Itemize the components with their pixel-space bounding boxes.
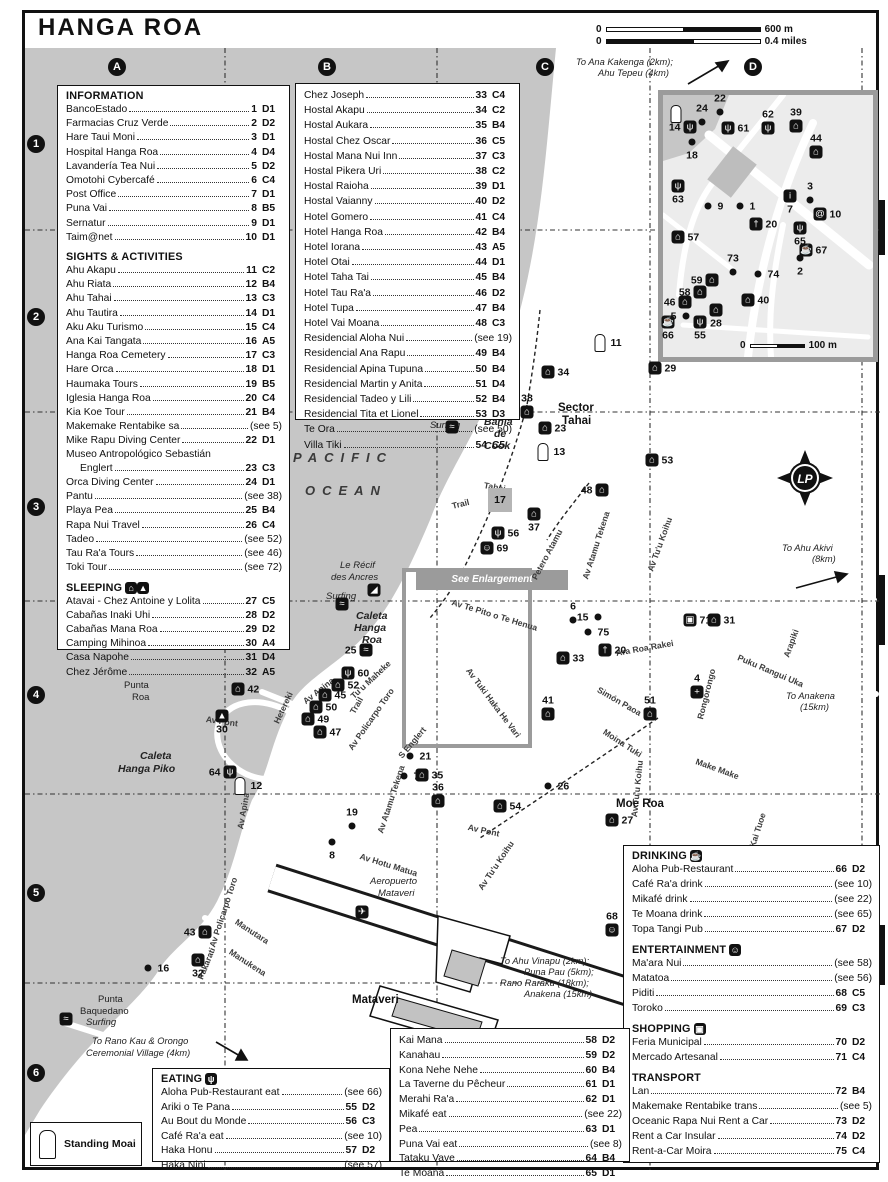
index-panel-right-bottom: DRINKING☕ Aloha Pub-Restaurant66D2Café R…	[623, 845, 880, 1163]
index-row: Cabañas Mana Roa29D2	[66, 622, 282, 636]
index-row: Kai Mana58D2	[399, 1033, 622, 1048]
index-row: Kia Koe Tour21B4	[66, 405, 282, 419]
index-row: Ma'ara Nui(see 58)	[632, 956, 872, 971]
index-row: Playa Pea25B4	[66, 503, 282, 517]
index-row: Hotel Taha Tai45B4	[304, 270, 512, 285]
map-label: Ceremonial Village (4km)	[86, 1048, 190, 1058]
index-row: Hotel Gomero41C4	[304, 210, 512, 225]
index-row: Te Moana65D1	[399, 1166, 622, 1181]
map-label: (15km)	[800, 702, 829, 712]
map-page: LP HANGA ROA 0 600 m 0 0.4 miles	[0, 0, 888, 1182]
map-label: To Ahu Vinapu (2km);	[500, 956, 589, 966]
map-label: Aeropuerto	[370, 876, 417, 887]
shopping-list: Feria Municipal70D2Mercado Artesanal71C4	[632, 1035, 872, 1065]
section-information: INFORMATION BancoEstado1D1Farmacias Cruz…	[66, 90, 282, 244]
index-row: Rent-a-Car Moira75C4	[632, 1144, 872, 1159]
index-row: Toki Tour(see 72)	[66, 560, 282, 574]
index-row: Sernatur9D1	[66, 216, 282, 230]
shp-icon: ▣	[694, 1023, 706, 1035]
section-title: TRANSPORT	[632, 1072, 872, 1084]
grid-column-badge-C: C	[536, 58, 554, 76]
entertainment-list: Ma'ara Nui(see 58)Matatoa(see 56)Piditi6…	[632, 956, 872, 1016]
map-label: Surfing	[326, 591, 356, 602]
index-row: Englert23C3	[66, 461, 282, 475]
index-row: Hostal Aukara35B4	[304, 118, 512, 133]
soccer-field-shape	[707, 146, 756, 198]
index-row: Residencial Ana Rapu49B4	[304, 346, 512, 361]
index-panel-eating-cont: Kai Mana58D2Kanahau59D2Kona Nehe Nehe60B…	[390, 1028, 630, 1162]
index-row: Matatoa(see 56)	[632, 971, 872, 986]
index-row: Hospital Hanga Roa4D4	[66, 145, 282, 159]
information-list: BancoEstado1D1Farmacias Cruz Verde2D2Har…	[66, 102, 282, 244]
map-label: Caleta	[140, 750, 172, 762]
index-row: Oceanic Rapa Nui Rent a Car73D2	[632, 1114, 872, 1129]
index-row: Hotel Hanga Roa42B4	[304, 225, 512, 240]
index-row: Aloha Pub-Restaurant66D2	[632, 862, 872, 877]
index-row: Haka Nini(see 57)	[161, 1158, 382, 1173]
map-label: Caleta	[356, 610, 388, 622]
index-row: Ahu Riata12B4	[66, 277, 282, 291]
map-label: To Ahu Akivi	[782, 543, 833, 553]
index-row: Hotel Vai Moana48C3	[304, 316, 512, 331]
index-row: Ahu Tahai13C3	[66, 291, 282, 305]
index-row: Ahu Akapu11C2	[66, 263, 282, 277]
index-row: Residencial Tadeo y Lili52B4	[304, 392, 512, 407]
map-label: Mataveri	[378, 888, 414, 899]
map-label: Puna Pau (5km);	[524, 967, 594, 977]
section-title: INFORMATION	[66, 90, 282, 102]
map-label: Roa	[132, 692, 149, 703]
index-row: Te Moana drink(see 65)	[632, 907, 872, 922]
index-row: Farmacias Cruz Verde2D2	[66, 116, 282, 130]
index-row: Hostal Raioha39D1	[304, 179, 512, 194]
enlargement-inset-map	[658, 90, 878, 362]
index-row: Rent a Car Insular74D2	[632, 1129, 872, 1144]
index-row: Hostal Pikera Uri38C2	[304, 164, 512, 179]
index-panel-eating: EATINGψ Aloha Pub-Restaurant eat(see 66)…	[152, 1068, 390, 1162]
index-row: Orca Diving Center24D1	[66, 475, 282, 489]
map-label: Baquedano	[80, 1006, 129, 1017]
index-row: Hotel Otai44D1	[304, 255, 512, 270]
index-row: Au Bout du Monde56C3	[161, 1114, 382, 1129]
map-label: Hanga	[354, 622, 386, 634]
index-row: Chez Joseph33C4	[304, 88, 512, 103]
map-label: Le Récif	[340, 560, 375, 571]
index-row: Villa Tiki54C5	[304, 438, 512, 453]
map-label: Tahai	[562, 415, 591, 427]
section-eating: EATINGψ Aloha Pub-Restaurant eat(see 66)…	[161, 1073, 382, 1173]
index-row: Hotel Tupa47B4	[304, 301, 512, 316]
index-row: Ana Kai Tangata16A5	[66, 334, 282, 348]
index-row: Mike Rapu Diving Center22D1	[66, 433, 282, 447]
index-row: Iglesia Hanga Roa20C4	[66, 391, 282, 405]
index-row: Mercado Artesanal71C4	[632, 1050, 872, 1065]
index-row: Residencial Apina Tupuna50B4	[304, 362, 512, 377]
index-row: Residencial Martin y Anita51D4	[304, 377, 512, 392]
page-edge-mark	[879, 575, 885, 645]
index-row: Hanga Roa Cemetery17C3	[66, 348, 282, 362]
index-row: Mikafé drink(see 22)	[632, 892, 872, 907]
grid-column-badge-D: D	[744, 58, 762, 76]
index-row: Ariki o Te Pana55D2	[161, 1100, 382, 1115]
index-row: Feria Municipal70D2	[632, 1035, 872, 1050]
index-row: Residencial Tita et Lionel53D3	[304, 407, 512, 422]
map-label: Sector	[558, 402, 594, 414]
map-label: To Rano Kau & Orongo	[92, 1036, 188, 1046]
map-label: To Anakena	[786, 691, 835, 701]
map-label: OCEAN	[305, 483, 387, 498]
legend-standing-moai: Standing Moai	[30, 1122, 142, 1166]
index-row: Aku Aku Turismo15C4	[66, 320, 282, 334]
section-shopping: SHOPPING▣ Feria Municipal70D2Mercado Art…	[632, 1023, 872, 1065]
index-row: Aloha Pub-Restaurant eat(see 66)	[161, 1085, 382, 1100]
index-row: Tadeo(see 52)	[66, 532, 282, 546]
map-label: Punta	[98, 994, 123, 1005]
section-sleeping: SLEEPING⌂▲ Atavai - Chez Antoine y Lolit…	[66, 582, 282, 679]
map-label: Ahu Tepeu (4km)	[598, 68, 669, 78]
index-row: Piditi68C5	[632, 986, 872, 1001]
see-enlargement-label: See Enlargement	[416, 570, 568, 590]
index-panel-left: INFORMATION BancoEstado1D1Farmacias Cruz…	[57, 85, 290, 650]
moai-icon	[39, 1130, 56, 1159]
index-row: Kanahau59D2	[399, 1048, 622, 1063]
index-row: Hare Orca18D1	[66, 362, 282, 376]
index-row: Ahu Tautira14D1	[66, 306, 282, 320]
grid-row-badge-3: 3	[27, 498, 45, 516]
ent-icon: ☺	[729, 944, 741, 956]
index-row: Hostal Akapu34C2	[304, 103, 512, 118]
lp-compass-logo: LP	[777, 450, 833, 506]
index-row: Makemake Rentabike sa(see 5)	[66, 419, 282, 433]
grid-column-badge-A: A	[108, 58, 126, 76]
index-row: Lavandería Tea Nui5D2	[66, 159, 282, 173]
index-row: Hostal Chez Oscar36C5	[304, 134, 512, 149]
index-row: Lan72B4	[632, 1084, 872, 1099]
index-row: Topa Tangi Pub67D2	[632, 922, 872, 937]
index-row: BancoEstado1D1	[66, 102, 282, 116]
index-row: Pea63D1	[399, 1122, 622, 1137]
section-title: SHOPPING	[632, 1023, 691, 1035]
index-row: Residencial Aloha Nui(see 19)	[304, 331, 512, 346]
index-row: Makemake Rentabike trans(see 5)	[632, 1099, 872, 1114]
section-transport: TRANSPORT Lan72B4Makemake Rentabike tran…	[632, 1072, 872, 1159]
index-row: Te Ora(see 50)	[304, 422, 512, 437]
index-row: Post Office7D1	[66, 187, 282, 201]
section-drinking: DRINKING☕ Aloha Pub-Restaurant66D2Café R…	[632, 850, 872, 937]
map-label: (8km)	[812, 554, 836, 564]
index-row: Haumaka Tours19B5	[66, 377, 282, 391]
slp-icon: ⌂	[125, 582, 137, 594]
sleeping-list: Atavai - Chez Antoine y Lolita27C5Cabaña…	[66, 594, 282, 679]
section-title: ENTERTAINMENT	[632, 944, 726, 956]
index-row: Café Ra'a drink(see 10)	[632, 877, 872, 892]
eating-list: Aloha Pub-Restaurant eat(see 66)Ariki o …	[161, 1085, 382, 1173]
index-row: Hare Taui Moni3D1	[66, 130, 282, 144]
index-row: Rapa Nui Travel26C4	[66, 518, 282, 532]
map-label: Rano Raraku (18km);	[500, 978, 589, 988]
inset-graphics	[663, 95, 873, 357]
section-sights: SIGHTS & ACTIVITIES Ahu Akapu11C2Ahu Ria…	[66, 251, 282, 574]
grid-column-badge-B: B	[318, 58, 336, 76]
grid-row-badge-4: 4	[27, 686, 45, 704]
index-row: Hotel Tau Ra'a46D2	[304, 286, 512, 301]
index-row: Tau Ra'a Tours(see 46)	[66, 546, 282, 560]
index-row: Hostal Vaianny40D2	[304, 194, 512, 209]
page-title: HANGA ROA	[38, 14, 203, 42]
grid-row-badge-1: 1	[27, 135, 45, 153]
index-row: Hostal Mana Nui Inn37C3	[304, 149, 512, 164]
index-row: Merahi Ra'a62D1	[399, 1092, 622, 1107]
grid-row-badge-6: 6	[27, 1064, 45, 1082]
svg-text:LP: LP	[797, 472, 813, 486]
inset-scale-bar: 0 100 m	[740, 340, 837, 351]
scale-bar-miles: 0 0.4 miles	[596, 36, 807, 47]
index-row: Puna Vai8B5	[66, 201, 282, 215]
index-row: Café Ra'a eat(see 10)	[161, 1129, 382, 1144]
index-row: La Taverne du Pêcheur61D1	[399, 1077, 622, 1092]
index-row: Pantu(see 38)	[66, 489, 282, 503]
map-label: Surfing	[86, 1017, 116, 1028]
map-label: Roa	[362, 634, 382, 646]
map-label: Punta	[124, 680, 149, 691]
index-row: Tataku Vave64B4	[399, 1151, 622, 1166]
index-row: Camping Mihinoa30A4	[66, 636, 282, 650]
index-row: Taim@net10D1	[66, 230, 282, 244]
index-row: Casa Napohe31D4	[66, 650, 282, 664]
index-row: Kona Nehe Nehe60B4	[399, 1063, 622, 1078]
index-row: Hotel Iorana43A5	[304, 240, 512, 255]
map-label: Anakena (15km)	[524, 989, 592, 999]
section-title: SIGHTS & ACTIVITIES	[66, 251, 282, 263]
sleeping-cont-list: Chez Joseph33C4Hostal Akapu34C2Hostal Au…	[304, 88, 512, 453]
eat-icon: ψ	[205, 1073, 217, 1085]
index-row: Atavai - Chez Antoine y Lolita27C5	[66, 594, 282, 608]
index-row: Cabañas Inaki Uhi28D2	[66, 608, 282, 622]
index-row: Museo Antropológico Sebastián	[66, 448, 282, 461]
map-label: Hanga Piko	[118, 763, 175, 775]
page-edge-mark	[879, 200, 885, 255]
drk-icon: ☕	[690, 850, 702, 862]
section-title: DRINKING	[632, 850, 687, 862]
grid-row-badge-5: 5	[27, 884, 45, 902]
scale-bar-metric: 0 600 m	[596, 24, 793, 35]
index-row: Mikafé eat(see 22)	[399, 1107, 622, 1122]
index-row: Chez Jérôme32A5	[66, 665, 282, 679]
legend-label: Standing Moai	[64, 1138, 136, 1150]
index-panel-sleeping-cont: Chez Joseph33C4Hostal Akapu34C2Hostal Au…	[295, 83, 520, 420]
map-label: Mataveri	[352, 994, 399, 1006]
section-title: EATING	[161, 1073, 202, 1085]
drinking-list: Aloha Pub-Restaurant66D2Café Ra'a drink(…	[632, 862, 872, 937]
map-label: To Ana Kakenga (2km);	[576, 57, 673, 67]
section-title: SLEEPING	[66, 582, 122, 594]
map-label: des Ancres	[331, 572, 378, 583]
index-row: Toroko69C3	[632, 1001, 872, 1016]
sights-list: Ahu Akapu11C2Ahu Riata12B4Ahu Tahai13C3A…	[66, 263, 282, 574]
section-entertainment: ENTERTAINMENT☺ Ma'ara Nui(see 58)Matatoa…	[632, 944, 872, 1016]
index-row: Omotohi Cybercafé6C4	[66, 173, 282, 187]
cam-icon: ▲	[137, 582, 149, 594]
transport-list: Lan72B4Makemake Rentabike trans(see 5)Oc…	[632, 1084, 872, 1159]
index-row: Puna Vai eat(see 8)	[399, 1137, 622, 1152]
index-row: Haka Honu57D2	[161, 1143, 382, 1158]
eating-cont-list: Kai Mana58D2Kanahau59D2Kona Nehe Nehe60B…	[399, 1033, 622, 1181]
grid-row-badge-2: 2	[27, 308, 45, 326]
